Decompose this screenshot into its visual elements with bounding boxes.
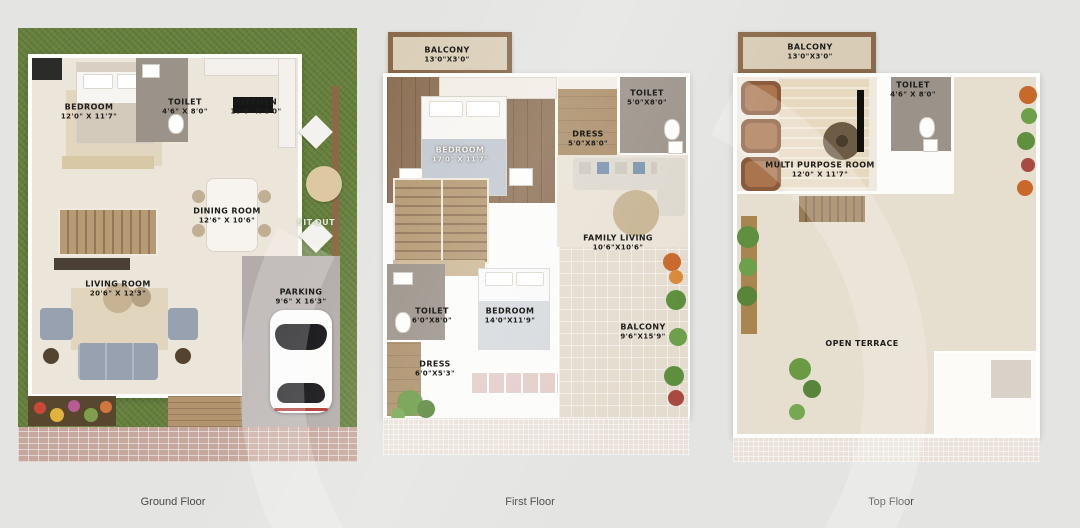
pillow bbox=[485, 272, 513, 286]
room-label-family-living: FAMILY LIVING 10'6"X10'6" bbox=[583, 234, 653, 253]
plant bbox=[737, 226, 759, 248]
flower bbox=[34, 402, 46, 414]
room-label-dress1: DRESS 5'0"X8'0" bbox=[568, 130, 608, 149]
sink bbox=[393, 272, 413, 285]
recliner bbox=[741, 119, 781, 153]
cushion bbox=[615, 162, 627, 174]
wc bbox=[168, 114, 184, 134]
plant bbox=[664, 366, 684, 386]
stair-divider bbox=[441, 180, 443, 262]
room-label-living-room: LIVING ROOM 20'6" X 12'3" bbox=[85, 280, 150, 299]
plant bbox=[669, 270, 683, 284]
sitout-table bbox=[306, 166, 342, 202]
car-windshield bbox=[275, 324, 327, 350]
plant bbox=[663, 253, 681, 271]
armchair bbox=[40, 308, 73, 340]
staircase bbox=[393, 178, 489, 264]
caption-top-floor: Top Floor bbox=[868, 496, 914, 508]
dress-shelf bbox=[558, 77, 617, 89]
plant bbox=[737, 286, 757, 306]
plant bbox=[1021, 158, 1035, 172]
cushion bbox=[633, 162, 645, 174]
first-floor-plan: BALCONY 13'0"X3'0" BEDROOM 17'0" X 11'7"… bbox=[383, 28, 691, 462]
caption-ground-floor: Ground Floor bbox=[141, 496, 206, 508]
room-label-dining-room: DINING ROOM 12'6" X 10'6" bbox=[193, 207, 260, 226]
tiled-walkway bbox=[733, 438, 1040, 462]
sink bbox=[142, 64, 160, 78]
dining-chair bbox=[258, 190, 271, 203]
top-floor-plan: BALCONY 13'0"X3'0" MULTI PURPOSE ROOM 12… bbox=[733, 28, 1040, 462]
caption-first-floor: First Floor bbox=[505, 496, 555, 508]
floor-plans-canvas: BEDROOM 12'0" X 11'7" TOILET 4'6" X 8'0"… bbox=[0, 0, 1080, 528]
dining-chair bbox=[258, 224, 271, 237]
round-table bbox=[823, 122, 861, 160]
wardrobe bbox=[32, 58, 62, 80]
brick-walkway bbox=[18, 427, 357, 462]
recliner-seat bbox=[745, 123, 777, 149]
plant bbox=[803, 380, 821, 398]
recliner bbox=[741, 81, 781, 115]
sitout-chair bbox=[299, 115, 333, 149]
car-taillights bbox=[274, 408, 328, 411]
room-label-bedroom1: BEDROOM 17'0" X 11'7" bbox=[432, 146, 488, 165]
car-rear-window bbox=[277, 383, 325, 403]
bench bbox=[471, 372, 559, 394]
plant bbox=[789, 404, 805, 420]
roof-inset bbox=[991, 360, 1031, 398]
room-label-balcony: BALCONY 13'0"X3'0" bbox=[787, 43, 832, 62]
plant bbox=[1017, 132, 1035, 150]
flower bbox=[100, 401, 112, 413]
flower bbox=[84, 408, 98, 422]
plant bbox=[668, 390, 684, 406]
side-table bbox=[175, 348, 191, 364]
room-label-dress2: DRESS 6'0"X5'3" bbox=[415, 360, 455, 379]
pillow bbox=[83, 74, 113, 89]
car bbox=[270, 310, 332, 413]
lower-roof bbox=[936, 353, 1036, 434]
room-label-open-terrace: OPEN TERRACE bbox=[825, 339, 898, 349]
plant bbox=[417, 400, 435, 418]
room-label-parking: PARKING 9'6" X 16'3" bbox=[275, 288, 326, 307]
room-label-bedroom: BEDROOM 12'0" X 11'7" bbox=[61, 103, 117, 122]
room-label-bedroom2: BEDROOM 14'0"X11'9" bbox=[485, 307, 536, 326]
flower bbox=[50, 408, 64, 422]
room-label-toilet1: TOILET 5'0"X8'0" bbox=[627, 89, 667, 108]
cushion bbox=[579, 162, 591, 174]
sink bbox=[923, 139, 938, 152]
entry-deck bbox=[168, 396, 242, 427]
room-label-toilet: TOILET 4'6" X 8'0" bbox=[890, 81, 936, 100]
cushion bbox=[597, 162, 609, 174]
wc bbox=[395, 312, 411, 333]
tiled-walkway bbox=[383, 418, 690, 455]
pillow bbox=[429, 101, 463, 117]
dining-chair bbox=[192, 224, 205, 237]
flower-bed bbox=[28, 396, 116, 426]
ground-floor-plan: BEDROOM 12'0" X 11'7" TOILET 4'6" X 8'0"… bbox=[18, 28, 357, 462]
room-label-sit-out: SIT-OUT bbox=[297, 218, 335, 228]
round-rug bbox=[613, 190, 659, 236]
sofa bbox=[78, 343, 158, 380]
runner-rug bbox=[799, 196, 865, 222]
dining-chair bbox=[192, 190, 205, 203]
plant bbox=[789, 358, 811, 380]
plant bbox=[1017, 180, 1033, 196]
side-table bbox=[43, 348, 59, 364]
armchair bbox=[168, 308, 198, 340]
room-label-multi-purpose-room: MULTI PURPOSE ROOM 12'0" X 11'7" bbox=[765, 161, 875, 180]
room-label-kitchen: KITCHEN 10'6" X 8'0" bbox=[230, 98, 281, 117]
pillow bbox=[516, 272, 544, 286]
wc bbox=[664, 119, 680, 140]
credenza bbox=[62, 156, 154, 169]
toilet2-room bbox=[387, 264, 445, 340]
chaise bbox=[657, 158, 685, 216]
wc bbox=[919, 117, 935, 138]
staircase bbox=[58, 208, 158, 256]
room-label-toilet2: TOILET 6'0"X8'0" bbox=[412, 307, 452, 326]
tv-console bbox=[54, 258, 130, 270]
recliner-seat bbox=[745, 85, 777, 111]
plant bbox=[669, 328, 687, 346]
plant bbox=[739, 258, 757, 276]
flower bbox=[68, 400, 80, 412]
plant bbox=[1019, 86, 1037, 104]
plant bbox=[666, 290, 686, 310]
room-label-balcony: BALCONY 13'0"X3'0" bbox=[424, 46, 469, 65]
sink bbox=[668, 141, 683, 154]
nightstand bbox=[509, 168, 533, 186]
room-label-toilet: TOILET 4'6" X 8'0" bbox=[162, 98, 208, 117]
plant bbox=[1021, 108, 1037, 124]
room-label-balcony2: BALCONY 9'6"X15'9" bbox=[620, 323, 665, 342]
pillow bbox=[466, 101, 500, 117]
tv-panel bbox=[857, 90, 864, 152]
